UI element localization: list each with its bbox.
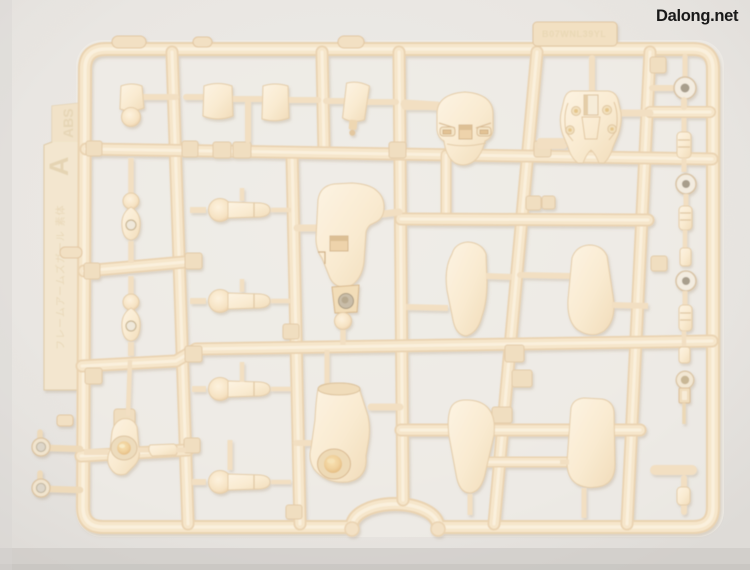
svg-text:B07WNL39YL: B07WNL39YL xyxy=(542,29,607,39)
svg-text:Dalong.net: Dalong.net xyxy=(656,7,739,25)
svg-text:ABS: ABS xyxy=(60,108,76,138)
svg-text:フレームアームズガール 素体: フレームアームズガール 素体 xyxy=(54,204,67,350)
svg-text:A: A xyxy=(44,157,74,177)
